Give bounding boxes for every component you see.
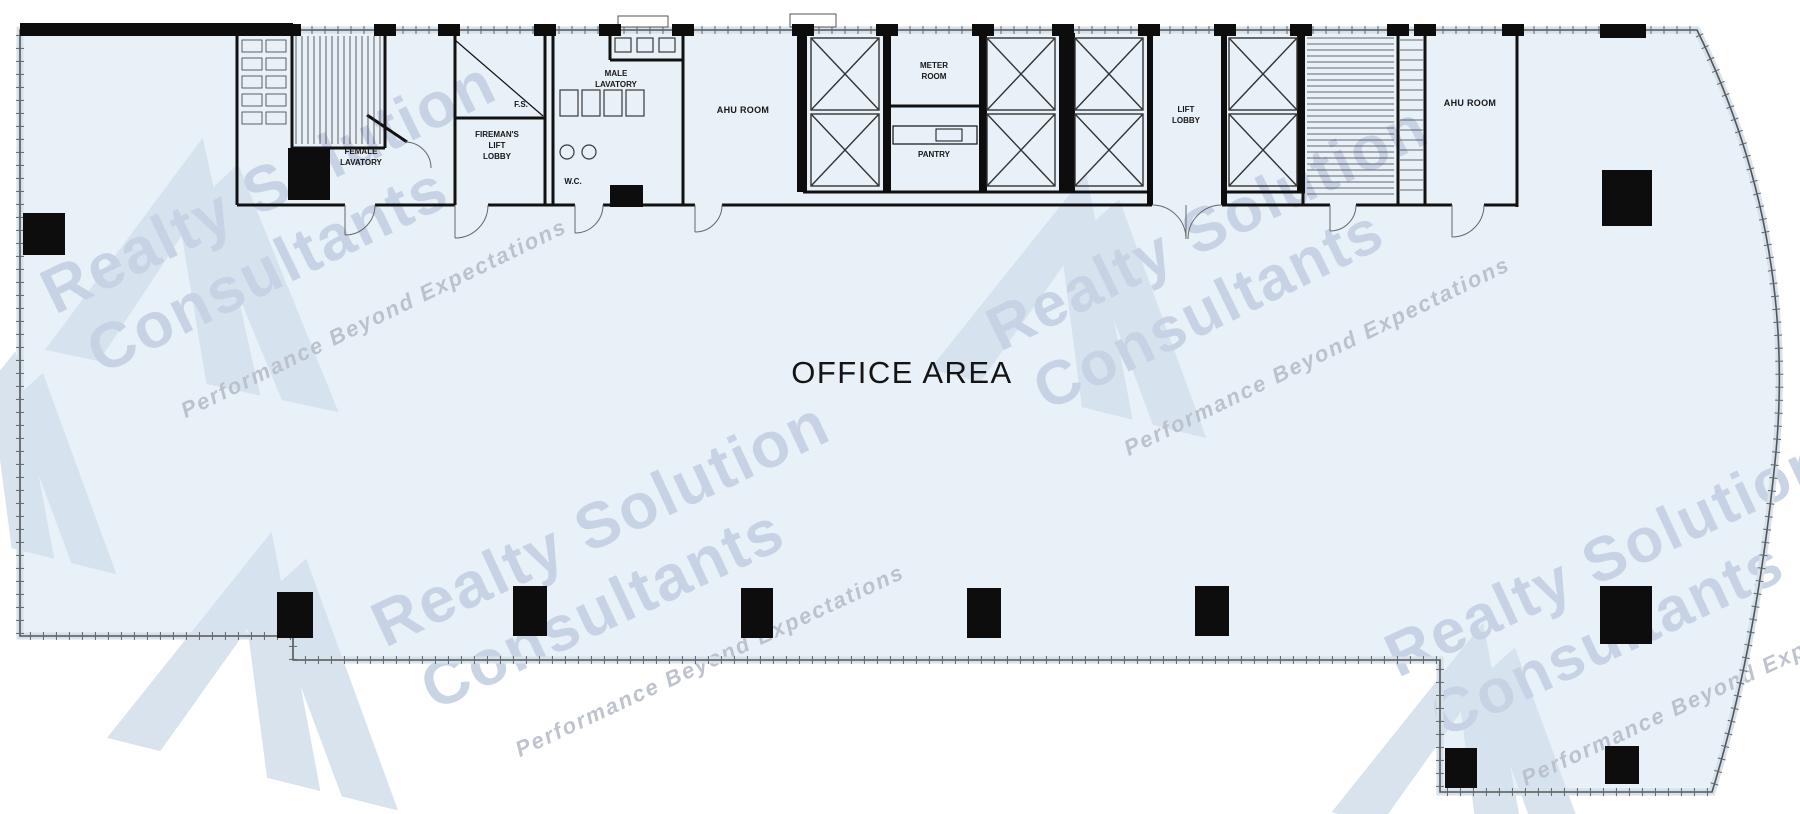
svg-text:LAVATORY: LAVATORY — [595, 80, 637, 89]
column — [277, 592, 313, 638]
column — [1195, 586, 1229, 636]
office-area-label: OFFICE AREA — [791, 355, 1012, 390]
svg-text:LOBBY: LOBBY — [1172, 116, 1201, 125]
svg-text:LOBBY: LOBBY — [483, 152, 512, 161]
column — [1445, 748, 1477, 788]
column — [1600, 586, 1652, 644]
svg-text:FIREMAN'S: FIREMAN'S — [475, 130, 519, 139]
room-label-ahu-left: AHU ROOM — [717, 105, 769, 115]
svg-text:LAVATORY: LAVATORY — [340, 158, 382, 167]
column — [23, 213, 65, 255]
floorplan-image: Realty Solution Consultants Performance … — [0, 0, 1800, 814]
top-wall-solid-segment — [20, 23, 293, 36]
room-label-ahu-right: AHU ROOM — [1444, 98, 1496, 108]
svg-text:FEMALE: FEMALE — [345, 147, 379, 156]
svg-text:LIFT: LIFT — [1178, 105, 1195, 114]
room-label-pantry: PANTRY — [918, 150, 951, 159]
svg-text:MALE: MALE — [605, 69, 628, 78]
svg-text:METER: METER — [920, 61, 948, 70]
column — [741, 588, 773, 638]
floor-plan: Realty Solution Consultants Performance … — [0, 0, 1800, 814]
facade-box — [618, 16, 668, 27]
column — [967, 588, 1001, 638]
column — [1605, 746, 1639, 784]
room-label-fs: F.S. — [514, 100, 528, 109]
column — [1602, 170, 1652, 226]
svg-text:LIFT: LIFT — [489, 141, 506, 150]
column — [513, 586, 547, 636]
svg-text:ROOM: ROOM — [922, 72, 947, 81]
room-label-wc: W.C. — [564, 177, 581, 186]
